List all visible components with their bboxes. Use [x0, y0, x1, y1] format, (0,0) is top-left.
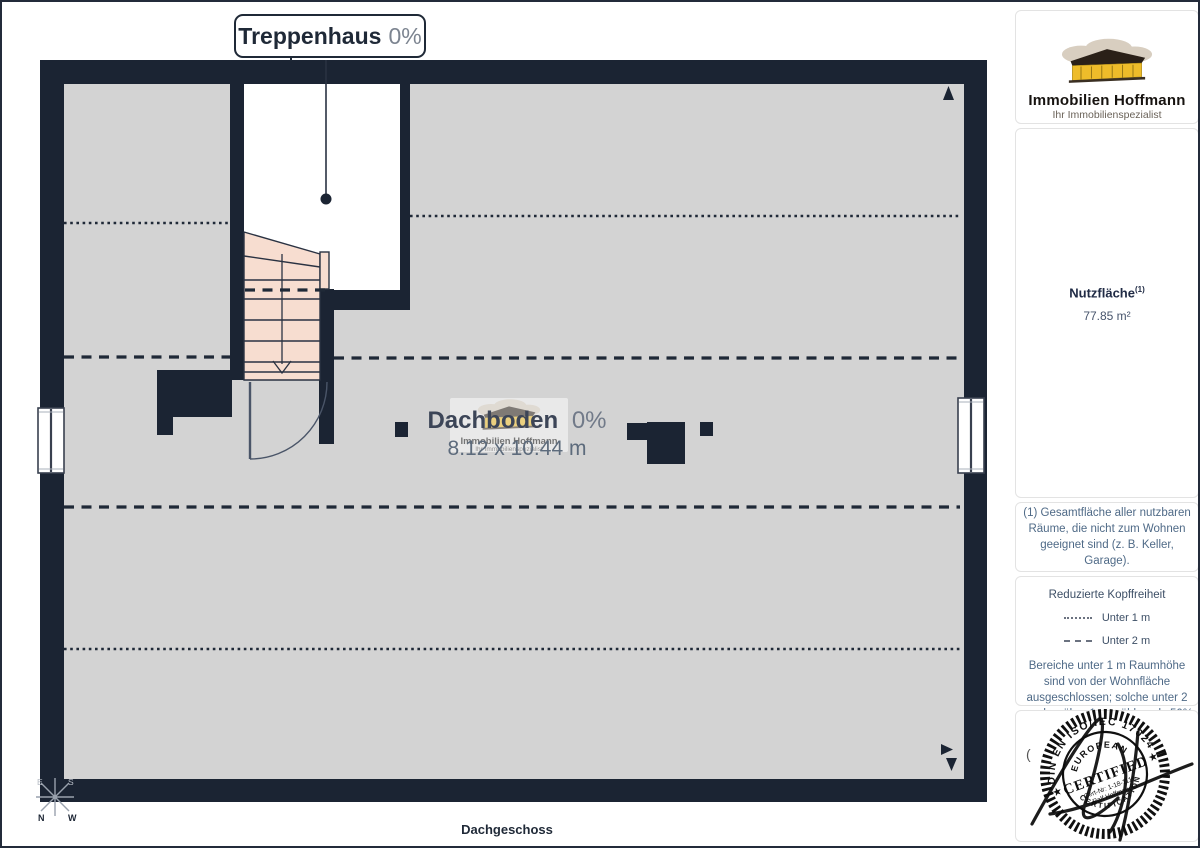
dashed-line-sample — [1064, 640, 1092, 642]
room-percent: 0% — [572, 407, 607, 434]
area-summary-card: Nutzfläche(1) 77.85 m² — [1015, 128, 1199, 498]
staircase — [244, 232, 329, 380]
compass-east: E — [37, 777, 43, 787]
room-tag-percent: 0% — [388, 23, 421, 50]
room-tag-name: Treppenhaus — [238, 23, 381, 50]
compass-west: W — [68, 813, 77, 823]
footnote-marker: (1) — [1135, 285, 1145, 294]
room-name: Dachboden — [427, 407, 558, 434]
area-type-label: Nutzfläche(1) — [1016, 285, 1198, 300]
compass-south: S — [68, 777, 74, 787]
room-dimensions: 8.12 x 10.44 m — [367, 437, 667, 461]
legend-item-under-2m: Unter 2 m — [1016, 635, 1198, 647]
logo-card: Immobilien Hoffmann Ihr Immobilienspezia… — [1015, 10, 1199, 124]
window-left — [38, 408, 64, 473]
window-right — [958, 398, 984, 473]
legend-title: Reduzierte Kopffreiheit — [1016, 589, 1198, 601]
footnote-text: (1) Gesamtfläche aller nutzbaren Räume, … — [1021, 505, 1193, 569]
footnote-card: (1) Gesamtfläche aller nutzbaren Räume, … — [1015, 502, 1199, 572]
stray-paren: ( — [1026, 746, 1031, 762]
legend-card: Reduzierte Kopffreiheit Unter 1 m Unter … — [1015, 576, 1199, 706]
company-logo-image — [1048, 37, 1166, 89]
compass-icon: E S N W — [27, 771, 85, 825]
room-tag-treppenhaus: Treppenhaus 0% — [234, 14, 426, 58]
compass-north: N — [38, 813, 45, 823]
area-value: 77.85 m² — [1016, 309, 1198, 323]
room-label-dachboden: Dachboden 0% 8.12 x 10.44 m — [367, 407, 667, 461]
floorplan-page: E S N W Treppenhaus 0% Immobilien Hoffma… — [0, 0, 1200, 848]
signature — [1022, 702, 1200, 848]
company-tagline: Ihr Immobilienspezialist — [1016, 109, 1198, 121]
dotted-line-sample — [1064, 617, 1092, 619]
company-name: Immobilien Hoffmann — [1016, 92, 1198, 109]
legend-item-under-1m: Unter 1 m — [1016, 612, 1198, 624]
